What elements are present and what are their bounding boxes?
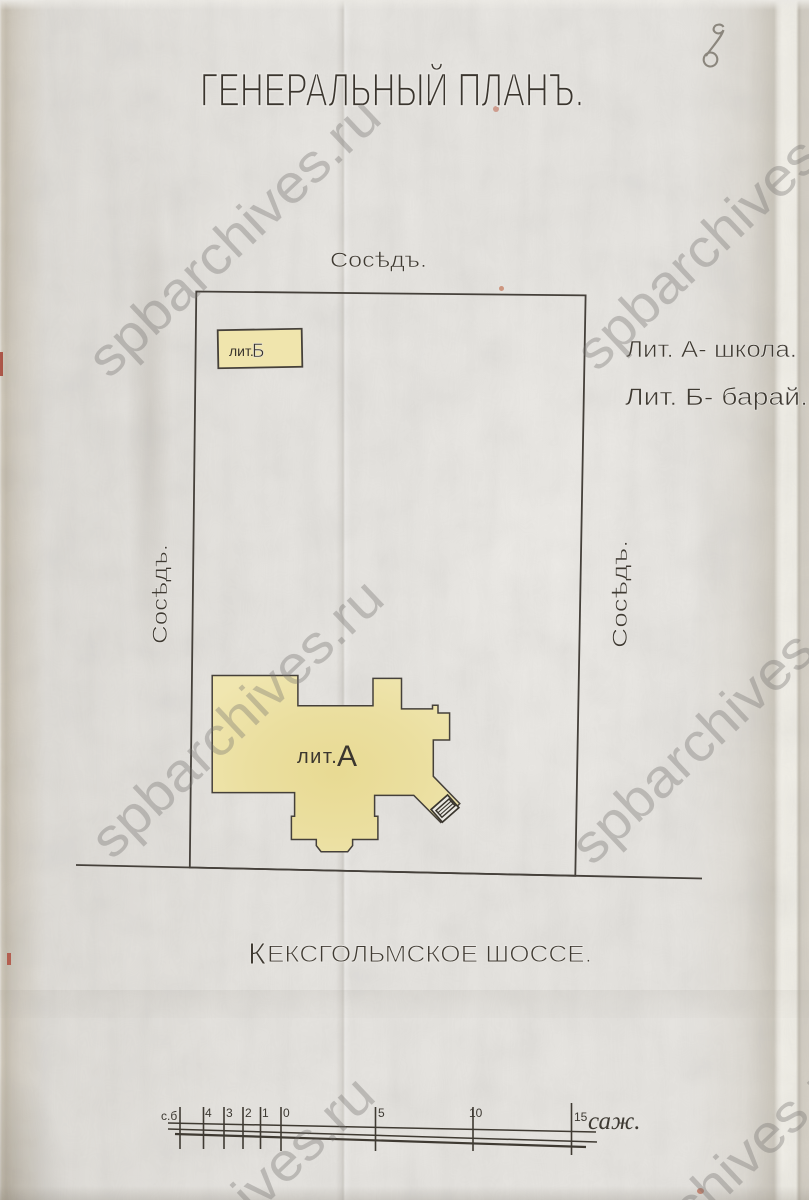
- svg-text:10: 10: [469, 1106, 483, 1120]
- svg-text:лит.: лит.: [297, 746, 338, 768]
- svg-text:ЕКСГОЛЬМСКОЕ ШОССЕ.: ЕКСГОЛЬМСКОЕ ШОССЕ.: [267, 941, 592, 968]
- svg-text:Лит. Б- барай.: Лит. Б- барай.: [625, 384, 808, 411]
- svg-text:с.б: с.б: [161, 1109, 177, 1123]
- svg-text:лит.: лит.: [229, 343, 254, 359]
- svg-text:А: А: [337, 740, 357, 773]
- svg-text:саж.: саж.: [588, 1108, 640, 1135]
- svg-text:К: К: [248, 936, 266, 971]
- svg-text:Б: Б: [252, 341, 264, 362]
- svg-text:Сосѣдъ.: Сосѣдъ.: [330, 249, 427, 272]
- svg-text:ГЕНЕРАЛЬНЫЙ ПЛАНЪ.: ГЕНЕРАЛЬНЫЙ ПЛАНЪ.: [200, 63, 584, 116]
- svg-text:4: 4: [205, 1106, 212, 1120]
- svg-text:3: 3: [226, 1106, 233, 1120]
- svg-text:1: 1: [262, 1106, 269, 1120]
- svg-text:Сосѣдъ.: Сосѣдъ.: [149, 544, 172, 644]
- svg-text:15: 15: [574, 1110, 588, 1124]
- svg-text:Сосѣдъ.: Сосѣдъ.: [609, 540, 632, 648]
- svg-text:Лит. А- школа.: Лит. А- школа.: [626, 336, 797, 362]
- svg-text:2: 2: [245, 1106, 252, 1120]
